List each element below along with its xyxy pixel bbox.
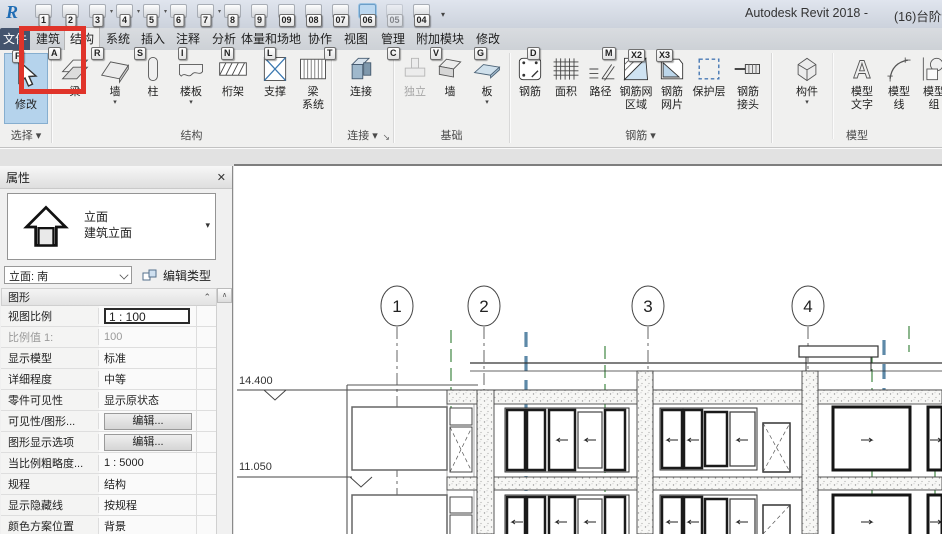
panel-connection[interactable]: 连接 ▾ ↘: [332, 129, 393, 143]
beam-system-button[interactable]: 梁系统: [296, 53, 330, 112]
rebar-coupler-button[interactable]: 钢筋接头: [728, 53, 768, 112]
qat-save-button[interactable]: 2: [57, 1, 84, 27]
properties-palette: 属性 ✕ 立面 建筑立面 ▾ 立面: 南: [0, 166, 233, 534]
quick-access-toolbar: 1 2 ▾3 ▾4 ▾5 6 ▾7 8 9 09 08 07 06 05 04 …: [30, 1, 445, 27]
qat-open-button[interactable]: 1: [30, 1, 57, 27]
tab-systems[interactable]: 系统: [101, 28, 135, 50]
qat-tag-button[interactable]: 9: [246, 1, 273, 27]
keytip-badge: 06: [359, 14, 375, 27]
table-row[interactable]: 规程 结构: [1, 474, 217, 495]
chevron-down-icon[interactable]: ▾: [205, 220, 210, 231]
keytip-badge: 6: [173, 14, 184, 27]
keytip-badge: 4: [119, 14, 130, 27]
roof-lines[interactable]: [470, 346, 942, 371]
qat-sync-button[interactable]: ▾3: [84, 1, 111, 27]
qat-measure-button[interactable]: ▾7: [192, 1, 219, 27]
dropdown-caret-icon[interactable]: ▾: [805, 99, 809, 106]
table-row: 比例值 1: 100: [1, 327, 217, 348]
properties-title-bar[interactable]: 属性 ✕: [0, 166, 232, 189]
panel-structure[interactable]: 结构: [52, 129, 331, 143]
modify-label: 修改: [15, 96, 37, 112]
qat-section-button[interactable]: 07: [327, 1, 354, 27]
keytip-collaborate: C: [387, 47, 400, 60]
properties-scrollbar[interactable]: ∧: [216, 288, 232, 534]
qat-undo-button[interactable]: ▾4: [111, 1, 138, 27]
close-icon[interactable]: ✕: [217, 171, 226, 184]
keytip-badge: 08: [305, 14, 321, 27]
model-line-button[interactable]: 模型线: [881, 53, 917, 112]
scroll-up-icon[interactable]: ∧: [217, 288, 232, 303]
table-row[interactable]: 显示模型 标准: [1, 348, 217, 369]
qat-text-button[interactable]: 09: [273, 1, 300, 27]
table-row[interactable]: 显示隐藏线 按规程: [1, 495, 217, 516]
keytip-insert: I: [178, 47, 187, 60]
qat-dimension-button[interactable]: 8: [219, 1, 246, 27]
tab-annotate[interactable]: 注释: [172, 28, 204, 50]
qat-redo-button[interactable]: ▾5: [138, 1, 165, 27]
keytip-x3: X3: [656, 49, 673, 62]
qat-print-button[interactable]: 6: [165, 1, 192, 27]
svg-text:11.050: 11.050: [239, 461, 272, 473]
drawing-area: 14.400 11.050: [234, 164, 942, 534]
type-selector-text: 立面 建筑立面: [84, 194, 132, 259]
highlight-rectangle: [19, 26, 86, 94]
svg-text:1: 1: [392, 297, 401, 316]
model-text-icon: A: [846, 53, 878, 85]
keytip-badge: 07: [332, 14, 348, 27]
table-row[interactable]: 当比例粗略度... 1 : 5000: [1, 453, 217, 474]
model-text-button[interactable]: A 模型文字: [843, 53, 881, 112]
keytip-badge: 3: [92, 14, 103, 27]
edit-type-button[interactable]: 编辑类型: [142, 267, 211, 284]
keytip-badge: 8: [227, 14, 238, 27]
area-reinforcement-icon: [550, 53, 582, 85]
keytip-badge: 7: [200, 14, 211, 27]
type-selector[interactable]: 立面 建筑立面 ▾: [7, 193, 216, 260]
keytip-massing: T: [324, 47, 336, 60]
qat-3dview-button[interactable]: 08: [300, 1, 327, 27]
keytip-manage: G: [474, 47, 487, 60]
area-reinforcement-button[interactable]: 面积: [549, 53, 583, 99]
keytip-addins: D: [527, 47, 540, 60]
elevation-type-icon: [8, 194, 84, 259]
model-line-icon: [883, 53, 915, 85]
svg-text:4: 4: [803, 297, 812, 316]
edit-type-icon: [142, 269, 158, 281]
view-selector-combo[interactable]: 立面: 南: [4, 266, 132, 284]
model-group-icon: [918, 53, 942, 85]
panel-foundation[interactable]: 基础: [394, 129, 509, 143]
wall-icon: [99, 53, 131, 85]
qat-switch-windows-button[interactable]: 04: [408, 1, 435, 27]
rebar-coupler-icon: [732, 53, 764, 85]
keytip-badge: 04: [413, 14, 429, 27]
table-row[interactable]: 图形显示选项 编辑...: [1, 432, 217, 453]
table-row[interactable]: 颜色方案位置 背景: [1, 516, 217, 534]
svg-text:14.400: 14.400: [239, 375, 273, 387]
model-group-button[interactable]: 模型组: [917, 53, 942, 112]
connection-button[interactable]: 连接: [338, 53, 384, 99]
rebar-cover-button[interactable]: 保护层: [690, 53, 728, 99]
keytip-badge: 5: [146, 14, 157, 27]
chevron-down-icon: [119, 270, 128, 279]
view-scale-input[interactable]: 1 : 100: [104, 308, 190, 324]
keytip-badge: 09: [278, 14, 294, 27]
document-title: (16)台阶制: [894, 6, 942, 25]
keytip-badge: 9: [254, 14, 265, 27]
rebar-cover-icon: [693, 53, 725, 85]
wall-structural-button[interactable]: 墙 ▾: [97, 53, 133, 106]
component-icon: [791, 53, 823, 85]
slab-button[interactable]: 板 ▾: [468, 53, 506, 106]
keytip-badge: 05: [386, 14, 402, 27]
title-bar: R 1 2 ▾3 ▾4 ▾5 6 ▾7 8 9 09 08 07 06 05 0…: [0, 0, 942, 28]
table-row[interactable]: 视图比例 1 : 100: [1, 306, 217, 327]
keytip-x2: X2: [628, 49, 645, 62]
tab-view[interactable]: 视图: [340, 28, 372, 50]
dropdown-caret-icon[interactable]: ▾: [485, 99, 489, 106]
graphics-section-header[interactable]: 图形 ⌃: [1, 288, 217, 306]
keytip-view: V: [430, 47, 442, 60]
properties-table: 图形 ⌃ 视图比例 1 : 100 比例值 1: 100 显示模型 标准 详细程…: [1, 288, 217, 534]
svg-text:3: 3: [643, 297, 652, 316]
truss-button[interactable]: 桁架: [212, 53, 254, 99]
keytip-modify: M: [602, 47, 616, 60]
table-row[interactable]: 零件可见性 显示原状态: [1, 390, 217, 411]
visibility-graphics-edit-button[interactable]: 编辑...: [104, 413, 192, 430]
grid-bubbles[interactable]: 1 2 3 4: [381, 286, 824, 326]
keytip-annotate: N: [221, 47, 234, 60]
qat-overflow-button[interactable]: ▾: [441, 10, 445, 27]
panel-model[interactable]: 模型: [772, 129, 942, 143]
qat-thin-lines-button[interactable]: 06: [354, 1, 381, 27]
collapse-icon[interactable]: ⌃: [203, 292, 211, 303]
isolated-foundation-icon: [399, 53, 431, 85]
isolated-foundation-button[interactable]: 独立: [397, 53, 433, 99]
keytip-analyze: L: [264, 47, 276, 60]
panel-select[interactable]: 选择 ▾: [2, 129, 50, 143]
ribbon: 修改 选择 ▾ 梁 墙 ▾ 柱: [0, 50, 942, 148]
svg-text:A: A: [853, 56, 871, 84]
steel-connection-icon: [345, 53, 377, 85]
building-elevation[interactable]: [347, 371, 942, 534]
keytip-systems: S: [134, 47, 146, 60]
table-row[interactable]: 详细程度 中等: [1, 369, 217, 390]
panel-rebar[interactable]: 钢筋 ▾: [510, 129, 771, 143]
revit-window: R 1 2 ▾3 ▾4 ▾5 6 ▾7 8 9 09 08 07 06 05 0…: [0, 0, 942, 534]
qat-close-hidden-button[interactable]: 05: [381, 1, 408, 27]
dropdown-caret-icon[interactable]: ▾: [113, 99, 117, 106]
table-row[interactable]: 可见性/图形... 编辑...: [1, 411, 217, 432]
svg-text:2: 2: [479, 297, 488, 316]
properties-title: 属性: [6, 169, 30, 186]
brace-button[interactable]: 支撑: [255, 53, 295, 99]
dropdown-caret-icon[interactable]: ▾: [189, 99, 193, 106]
component-button[interactable]: 构件 ▾: [786, 53, 828, 106]
floor-button[interactable]: 楼板 ▾: [172, 53, 210, 106]
dialog-launcher-icon[interactable]: ↘: [382, 130, 390, 144]
graphic-display-edit-button[interactable]: 编辑...: [104, 434, 192, 451]
app-title: Autodesk Revit 2018 -: [745, 6, 868, 20]
keytip-structure: R: [91, 47, 104, 60]
revit-logo-icon[interactable]: R: [6, 2, 18, 23]
drawing-canvas[interactable]: 14.400 11.050: [234, 166, 942, 534]
